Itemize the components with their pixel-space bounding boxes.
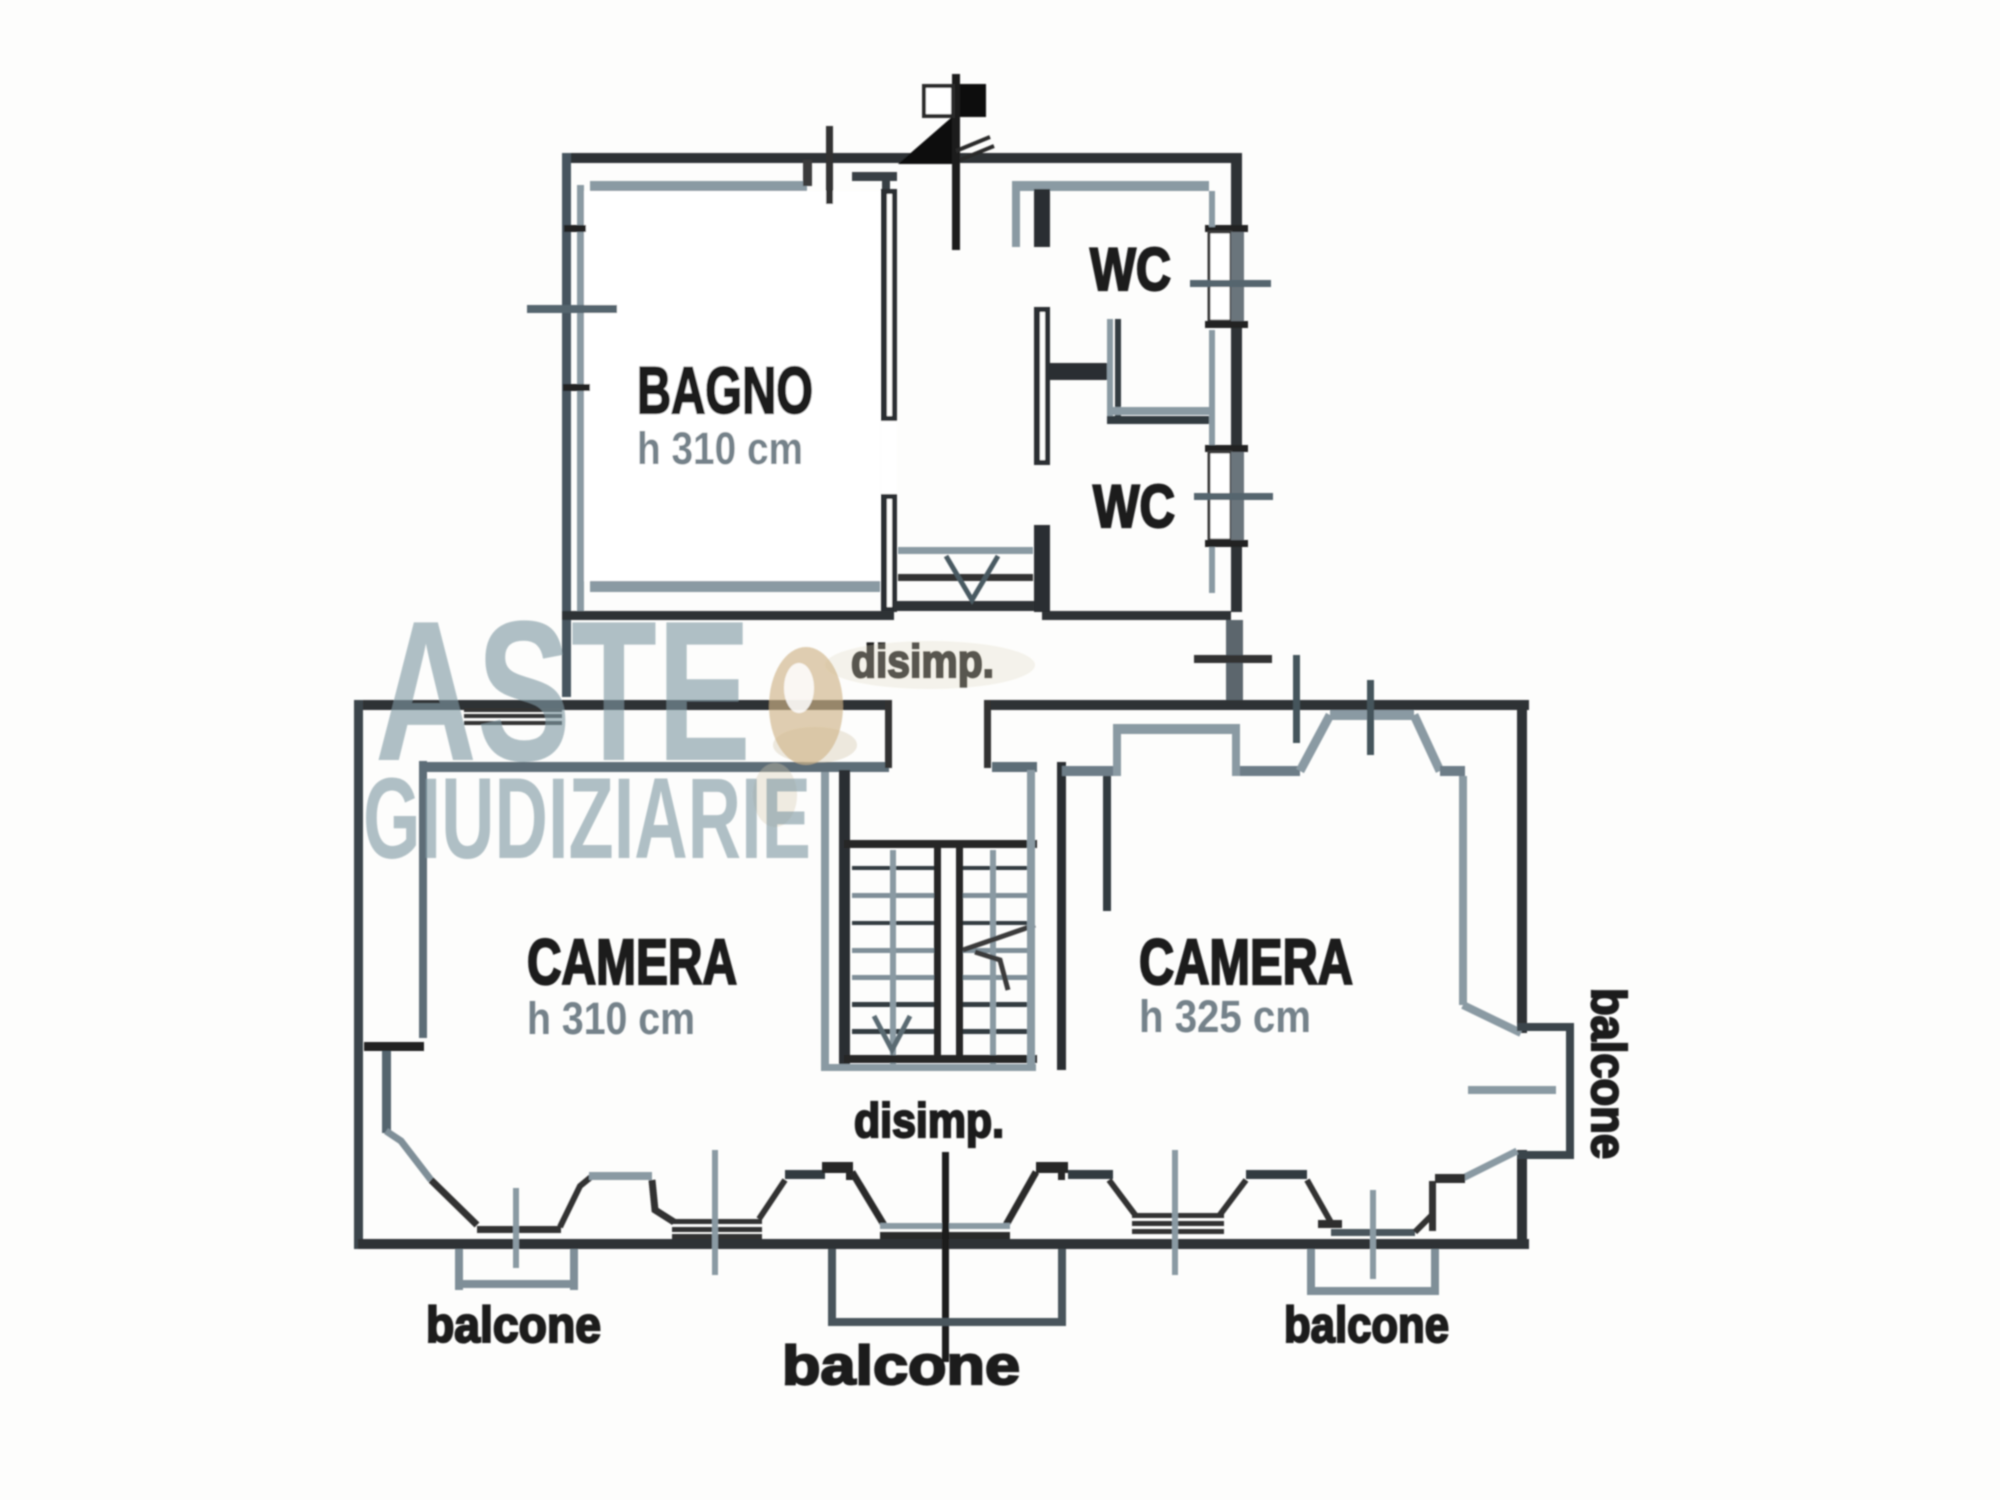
svg-text:balcone: balcone (782, 1334, 1020, 1396)
svg-text:disimp.: disimp. (854, 1095, 1004, 1148)
svg-text:h 310 cm: h 310 cm (527, 993, 695, 1044)
svg-text:CAMERA: CAMERA (1139, 926, 1353, 998)
svg-text:CAMERA: CAMERA (527, 926, 737, 998)
svg-text:WC: WC (1093, 473, 1175, 540)
svg-text:WC: WC (1090, 236, 1171, 303)
svg-text:balcone: balcone (426, 1297, 601, 1353)
svg-text:balcone: balcone (1581, 988, 1634, 1159)
svg-text:h 310 cm: h 310 cm (637, 423, 803, 474)
svg-text:h 325 cm: h 325 cm (1139, 991, 1311, 1042)
svg-text:balcone: balcone (1284, 1297, 1449, 1353)
svg-text:BAGNO: BAGNO (637, 353, 813, 427)
svg-text:GIUDIZIARIE: GIUDIZIARIE (363, 755, 811, 883)
